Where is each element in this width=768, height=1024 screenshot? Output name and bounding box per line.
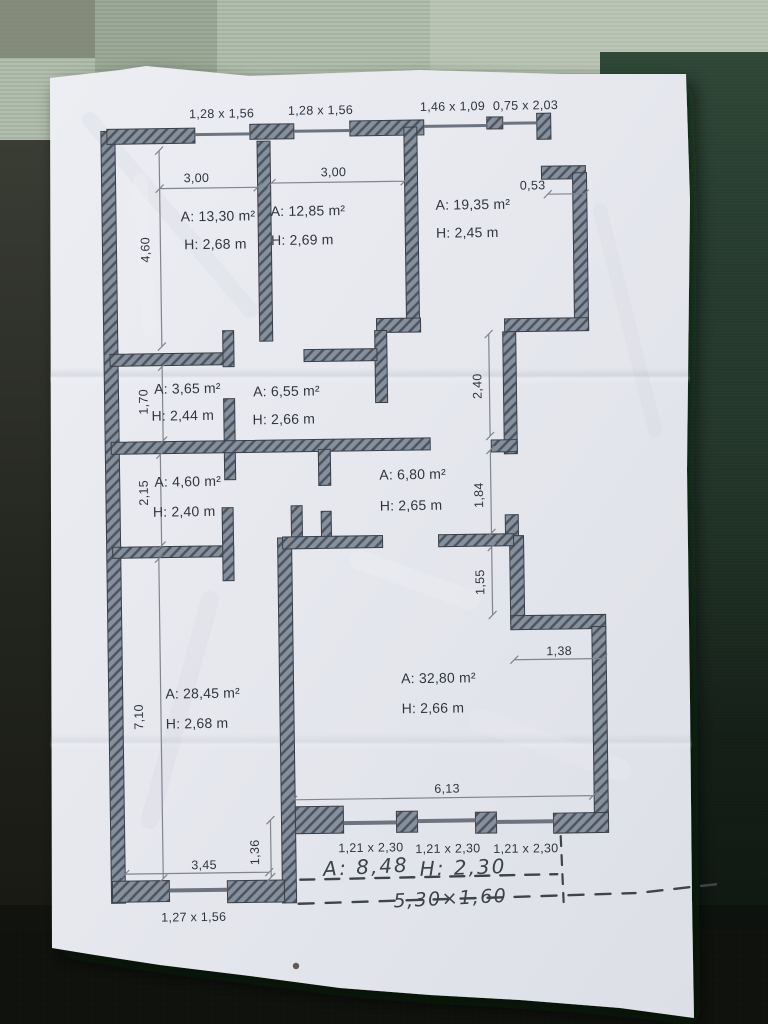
hall2-area-label: A: 6,80 m² bbox=[379, 466, 446, 483]
room7-height-label: H: 2,66 m bbox=[402, 699, 465, 716]
dim-left-upper: 4,60 bbox=[138, 237, 152, 263]
room1-height-label: H: 2,68 m bbox=[184, 235, 247, 252]
room6-height-label: H: 2,68 m bbox=[166, 715, 229, 732]
top-window-label-1: 1,28 x 1,56 bbox=[189, 106, 254, 121]
room5-area-label: A: 4,60 m² bbox=[154, 473, 221, 490]
dim-right-jog: 1,38 bbox=[546, 644, 572, 658]
hall1-area-label: A: 6,55 m² bbox=[253, 382, 320, 399]
dim-right-upper: 2,40 bbox=[470, 373, 484, 399]
room2-area-label: A: 12,85 m² bbox=[271, 202, 346, 219]
bottom-left-window-label: 1,27 x 1,56 bbox=[161, 910, 226, 925]
room1-area-label: A: 13,30 m² bbox=[181, 207, 256, 224]
dim-right-lower: 1,55 bbox=[473, 569, 487, 595]
room5-height-label: H: 2,40 m bbox=[153, 503, 216, 520]
room4-height-label: H: 2,44 m bbox=[151, 407, 214, 424]
hall1-height-label: H: 2,66 m bbox=[253, 410, 316, 427]
dim-bottom-width: 6,13 bbox=[434, 781, 460, 795]
room2-height-label: H: 2,69 m bbox=[271, 231, 334, 248]
top-window-label-3: 1,46 x 1,09 bbox=[420, 99, 485, 114]
top-window-label-4: 0,75 x 2,03 bbox=[493, 98, 558, 113]
bottom-window-label-2: 1,21 x 2,30 bbox=[415, 841, 480, 856]
dim-room2-width: 3,00 bbox=[321, 165, 347, 179]
hall2-height-label: H: 2,65 m bbox=[380, 497, 443, 514]
paper-blemish bbox=[293, 963, 299, 969]
handwritten-balcony-area: A: 8,48 bbox=[321, 853, 410, 881]
top-window-label-2: 1,28 x 1,56 bbox=[288, 103, 353, 118]
handwritten-balcony-height: H: 2,30 bbox=[419, 854, 506, 881]
photo-of-floor-plan: 1,28 x 1,56 1,28 x 1,56 1,46 x 1,09 0,75… bbox=[0, 0, 768, 1024]
dim-room1-width: 3,00 bbox=[184, 171, 210, 185]
room3-area-label: A: 19,35 m² bbox=[435, 196, 510, 213]
dim-right-mid: 1,84 bbox=[472, 482, 486, 508]
room4-area-label: A: 3,65 m² bbox=[154, 380, 221, 397]
dim-step-top: 0,53 bbox=[520, 178, 546, 192]
dim-bottom-left-offset: 1,36 bbox=[248, 839, 262, 865]
dim-left-mid1: 1,70 bbox=[136, 389, 150, 415]
room6-area-label: A: 28,45 m² bbox=[165, 685, 240, 702]
dim-left-mid2: 2,15 bbox=[137, 480, 151, 506]
room7-area-label: A: 32,80 m² bbox=[401, 669, 476, 686]
dim-left-lower: 7,10 bbox=[132, 704, 146, 730]
room3-height-label: H: 2,45 m bbox=[436, 224, 499, 241]
dim-bottom-left-width: 3,45 bbox=[191, 858, 217, 872]
